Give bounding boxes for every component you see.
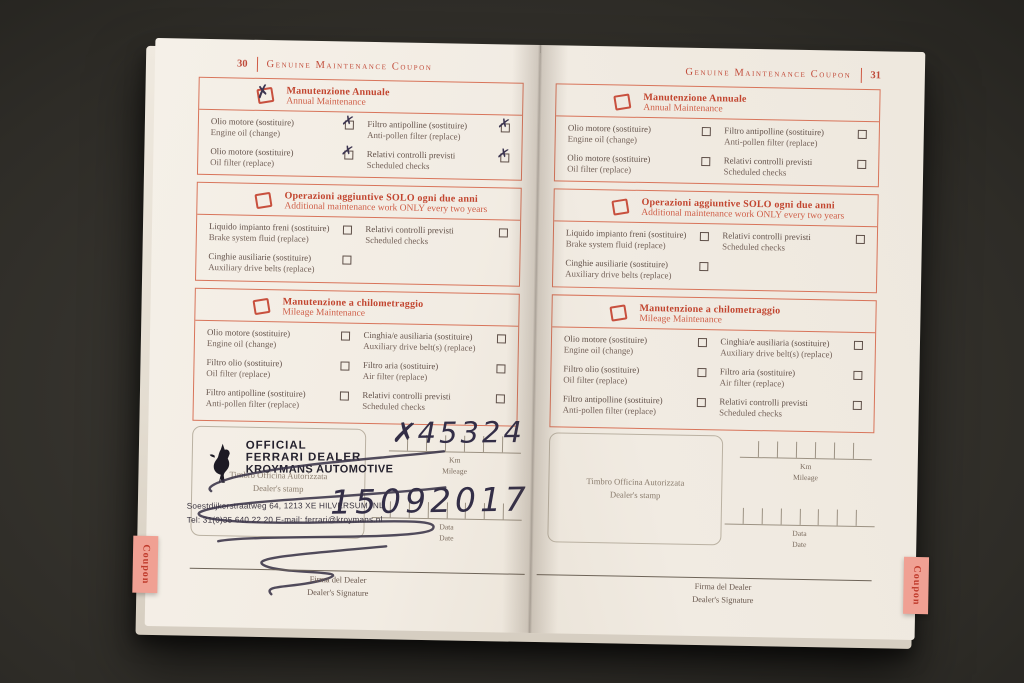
page-number: 31	[870, 70, 881, 81]
section-title-en: Annual Maintenance	[643, 103, 746, 115]
stamp-address: Soestdijkerstraatweg 64, 1213 XE HILVERS…	[187, 499, 477, 528]
header-divider	[860, 68, 861, 83]
item-checkbox: ✗	[344, 150, 353, 159]
checklist-item: Filtro antipolline (sostituire)Anti-poll…	[563, 393, 706, 418]
section-checkbox: ✗	[256, 87, 274, 104]
checklist-item: Filtro aria (sostituire)Air filter (repl…	[720, 366, 863, 391]
checklist-item: Relativi controlli previstiScheduled che…	[362, 390, 505, 415]
item-checkbox	[342, 255, 351, 264]
item-checkbox	[342, 225, 351, 234]
ink-check-mark: ✗	[496, 116, 511, 133]
checklist-item: Olio motore (sostituire)Oil filter (repl…	[210, 146, 353, 171]
item-checkbox	[853, 401, 862, 410]
annual-maintenance-section: Manutenzione Annuale Annual Maintenance …	[554, 83, 881, 187]
header-title: Genuine Maintenance Coupon	[266, 59, 432, 73]
coupon-tab: Coupon	[132, 536, 158, 593]
stamp-text: OFFICIAL FERRARI DEALER KROYMANS AUTOMOT…	[246, 439, 394, 475]
ink-check-mark: ✗	[340, 113, 355, 130]
checklist-item: Cinghie ausiliarie (sostituire)Auxiliary…	[565, 257, 708, 282]
signature-label: Firma del Dealer Dealer's Signature	[145, 571, 530, 603]
item-checkbox	[497, 334, 506, 343]
checklist-item: Filtro antipolline (sostituire)Anti-poll…	[724, 125, 867, 150]
ink-check-mark: ✗	[339, 143, 354, 160]
checklist-item: Olio motore (sostituire)Engine oil (chan…	[207, 327, 350, 352]
section-checkbox	[609, 304, 627, 321]
date-entry-field	[725, 508, 875, 528]
item-checkbox	[496, 394, 505, 403]
item-checkbox	[701, 127, 710, 136]
item-checkbox	[340, 331, 349, 340]
item-checkbox: ✗	[344, 120, 353, 129]
left-page: 30 Genuine Maintenance Coupon ✗ Manutenz…	[145, 38, 541, 633]
photo-of-maintenance-booklet: 30 Genuine Maintenance Coupon ✗ Manutenz…	[0, 0, 1024, 683]
km-entry-field	[740, 441, 872, 460]
stamp-placeholder: Timbro Officina Autorizzata Dealer's sta…	[586, 475, 684, 503]
mileage-maintenance-section: Manutenzione a chilometraggio Mileage Ma…	[192, 288, 519, 427]
checklist-item: Filtro olio (sostituire)Oil filter (repl…	[206, 357, 349, 382]
checklist-item: Liquido impianto freni (sostituire)Brake…	[209, 221, 352, 246]
checklist-item: Filtro antipolline (sostituire)Anti-poll…	[367, 119, 510, 144]
checklist-item: Relativi controlli previstiScheduled che…	[719, 396, 862, 421]
dealer-stamp-box: Timbro Officina Autorizzata Dealer's sta…	[547, 432, 723, 545]
item-checkbox	[339, 391, 348, 400]
ink-check-mark: ✗	[254, 83, 272, 103]
item-checkbox	[496, 364, 505, 373]
item-checkbox: ✗	[500, 153, 509, 162]
checklist-item: Relativi controlli previstiScheduled che…	[367, 149, 510, 174]
page-number: 30	[237, 58, 248, 69]
checklist-item: Olio motore (sostituire)Engine oil (chan…	[564, 334, 707, 359]
item-checkbox	[854, 341, 863, 350]
section-checkbox	[611, 198, 629, 215]
checklist-item: Filtro olio (sostituire)Oil filter (repl…	[563, 363, 706, 388]
biennial-maintenance-section: Operazioni aggiuntive SOLO ogni due anni…	[195, 182, 522, 287]
right-page-header: Genuine Maintenance Coupon 31	[556, 62, 881, 83]
item-checkbox	[499, 228, 508, 237]
item-checkbox: ✗	[501, 123, 510, 132]
date-field-label: Data Date	[724, 527, 874, 552]
annual-maintenance-section: ✗ Manutenzione Annuale Annual Maintenanc…	[197, 77, 524, 181]
section-title-en: Annual Maintenance	[286, 96, 389, 108]
item-checkbox	[858, 130, 867, 139]
checklist-item: Relativi controlli previstiScheduled che…	[722, 230, 865, 255]
item-checkbox	[699, 262, 708, 271]
section-checkbox	[613, 93, 631, 110]
item-checkbox	[340, 361, 349, 370]
checklist-item: Liquido impianto freni (sostituire)Brake…	[566, 228, 709, 253]
checklist-item: Olio motore (sostituire)Engine oil (chan…	[211, 116, 354, 141]
section-checkbox	[252, 298, 270, 315]
item-checkbox	[696, 398, 705, 407]
checklist-item: Olio motore (sostituire)Engine oil (chan…	[568, 123, 711, 148]
item-checkbox	[701, 157, 710, 166]
checklist-item: Olio motore (sostituire)Oil filter (repl…	[567, 152, 710, 177]
checklist-item: Cinghie ausiliarie (sostituire)Auxiliary…	[208, 251, 351, 276]
ferrari-dealer-stamp: OFFICIAL FERRARI DEALER KROYMANS AUTOMOT…	[206, 439, 476, 484]
item-checkbox	[697, 368, 706, 377]
right-page: Genuine Maintenance Coupon 31 Manutenzio…	[530, 45, 926, 640]
checklist-item: Relativi controlli previstiScheduled che…	[365, 224, 508, 249]
open-service-booklet: 30 Genuine Maintenance Coupon ✗ Manutenz…	[145, 38, 926, 640]
item-checkbox	[697, 338, 706, 347]
mileage-maintenance-section: Manutenzione a chilometraggio Mileage Ma…	[549, 294, 876, 433]
checklist-item: Filtro antipolline (sostituire)Anti-poll…	[206, 387, 349, 412]
checklist-item: Relativi controlli previstiScheduled che…	[723, 155, 866, 180]
item-checkbox	[853, 371, 862, 380]
coupon-tab: Coupon	[903, 557, 929, 614]
checklist-item: Cinghia/e ausiliaria (sostituire)Auxilia…	[363, 330, 506, 355]
item-checkbox	[856, 235, 865, 244]
km-field-label: Km Mileage	[739, 460, 871, 484]
item-checkbox	[857, 160, 866, 169]
checklist-item: Filtro aria (sostituire)Air filter (repl…	[363, 360, 506, 385]
signature-label: Firma del Dealer Dealer's Signature	[530, 578, 915, 610]
ink-check-mark: ✗	[496, 146, 511, 163]
item-checkbox	[699, 232, 708, 241]
checklist-item: Cinghia/e ausiliaria (sostituire)Auxilia…	[720, 336, 863, 361]
left-page-header: 30 Genuine Maintenance Coupon	[199, 56, 524, 77]
biennial-maintenance-section: Operazioni aggiuntive SOLO ogni due anni…	[552, 188, 879, 293]
section-checkbox	[254, 192, 272, 209]
header-title: Genuine Maintenance Coupon	[685, 67, 851, 81]
header-divider	[256, 57, 257, 72]
ferrari-horse-icon	[206, 442, 236, 484]
